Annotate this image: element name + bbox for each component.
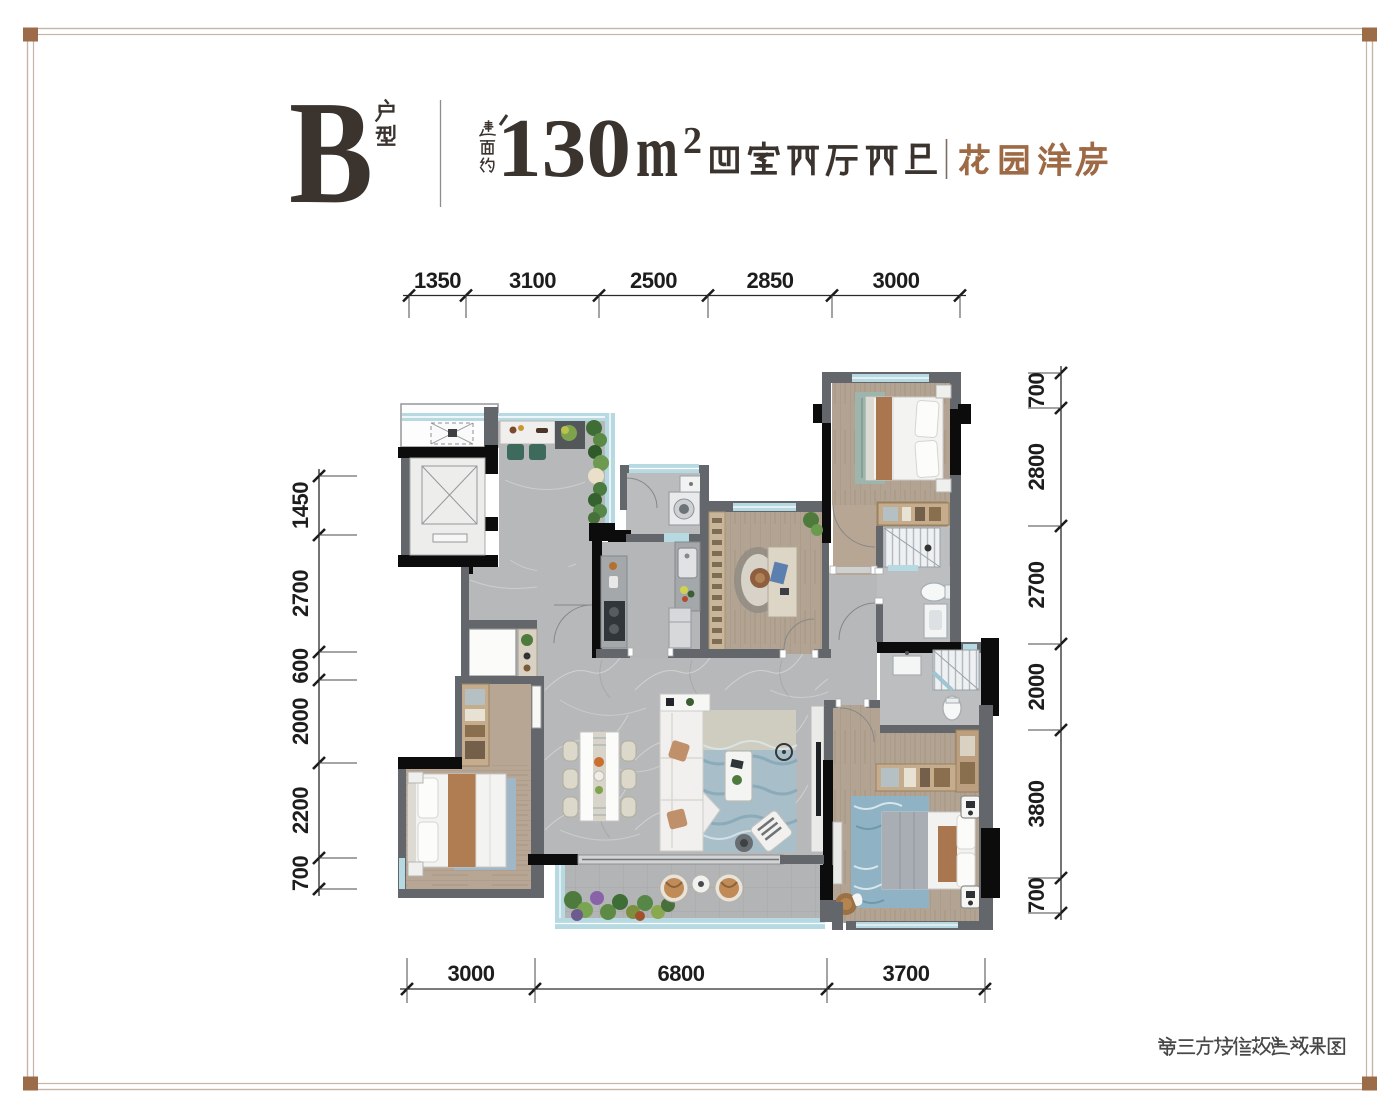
svg-text:6800: 6800 [658, 961, 705, 986]
svg-text:700: 700 [1024, 373, 1049, 408]
svg-text:3100: 3100 [509, 268, 556, 293]
svg-text:3700: 3700 [883, 961, 930, 986]
svg-text:2: 2 [683, 120, 702, 162]
svg-text:2700: 2700 [288, 570, 313, 617]
svg-text:2200: 2200 [288, 787, 313, 834]
svg-text:3000: 3000 [873, 268, 920, 293]
svg-text:3000: 3000 [448, 961, 495, 986]
svg-text:m: m [636, 111, 678, 193]
svg-text:2500: 2500 [630, 268, 677, 293]
svg-text:1350: 1350 [414, 268, 461, 293]
svg-text:2700: 2700 [1024, 561, 1049, 608]
svg-text:1450: 1450 [288, 482, 313, 529]
svg-text:2000: 2000 [1024, 663, 1049, 710]
svg-text:600: 600 [288, 648, 313, 683]
svg-text:B: B [289, 71, 373, 235]
svg-text:2850: 2850 [747, 268, 794, 293]
svg-text:700: 700 [288, 856, 313, 891]
svg-text:130: 130 [497, 102, 631, 195]
svg-text:2000: 2000 [288, 698, 313, 745]
svg-text:2800: 2800 [1024, 443, 1049, 490]
svg-text:3800: 3800 [1024, 780, 1049, 827]
svg-text:700: 700 [1024, 878, 1049, 913]
